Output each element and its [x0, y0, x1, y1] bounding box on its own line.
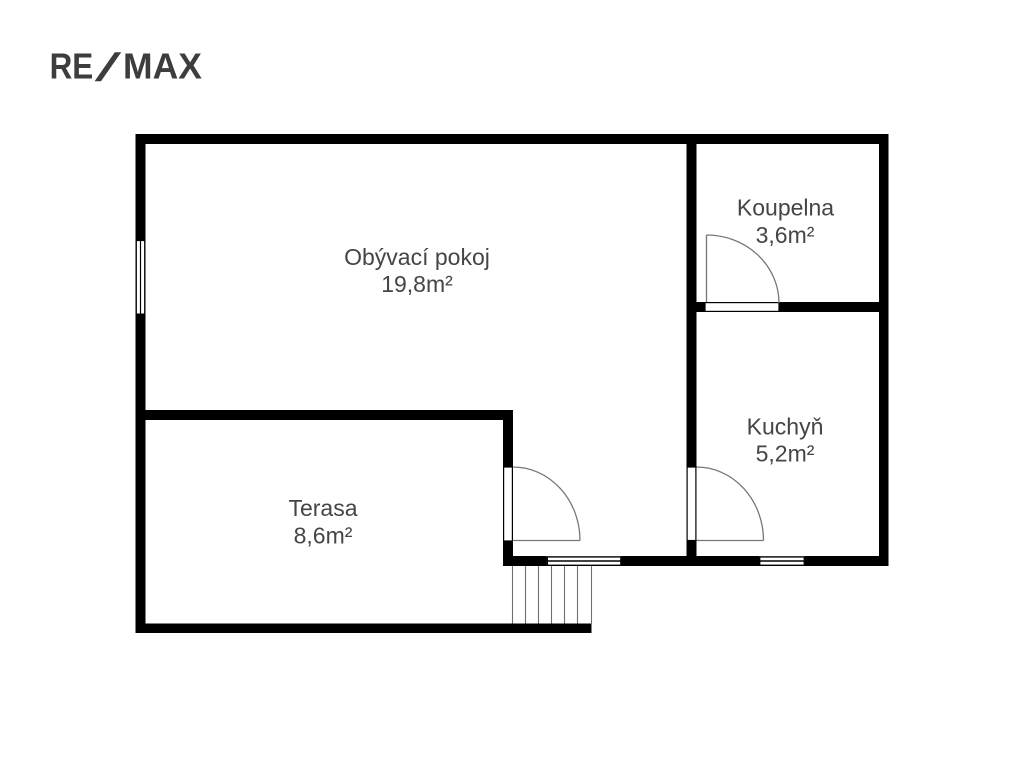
svg-text:5,2m²: 5,2m² — [756, 441, 815, 467]
svg-text:3,6m²: 3,6m² — [756, 222, 815, 248]
svg-text:Terasa: Terasa — [288, 495, 357, 521]
svg-text:Obývací pokoj: Obývací pokoj — [344, 244, 490, 270]
svg-text:MAX: MAX — [123, 46, 202, 86]
svg-text:Koupelna: Koupelna — [737, 195, 834, 221]
svg-text:19,8m²: 19,8m² — [381, 271, 453, 297]
svg-text:Kuchyň: Kuchyň — [747, 413, 824, 439]
svg-text:RE: RE — [50, 46, 94, 87]
svg-text:8,6m²: 8,6m² — [294, 523, 353, 549]
